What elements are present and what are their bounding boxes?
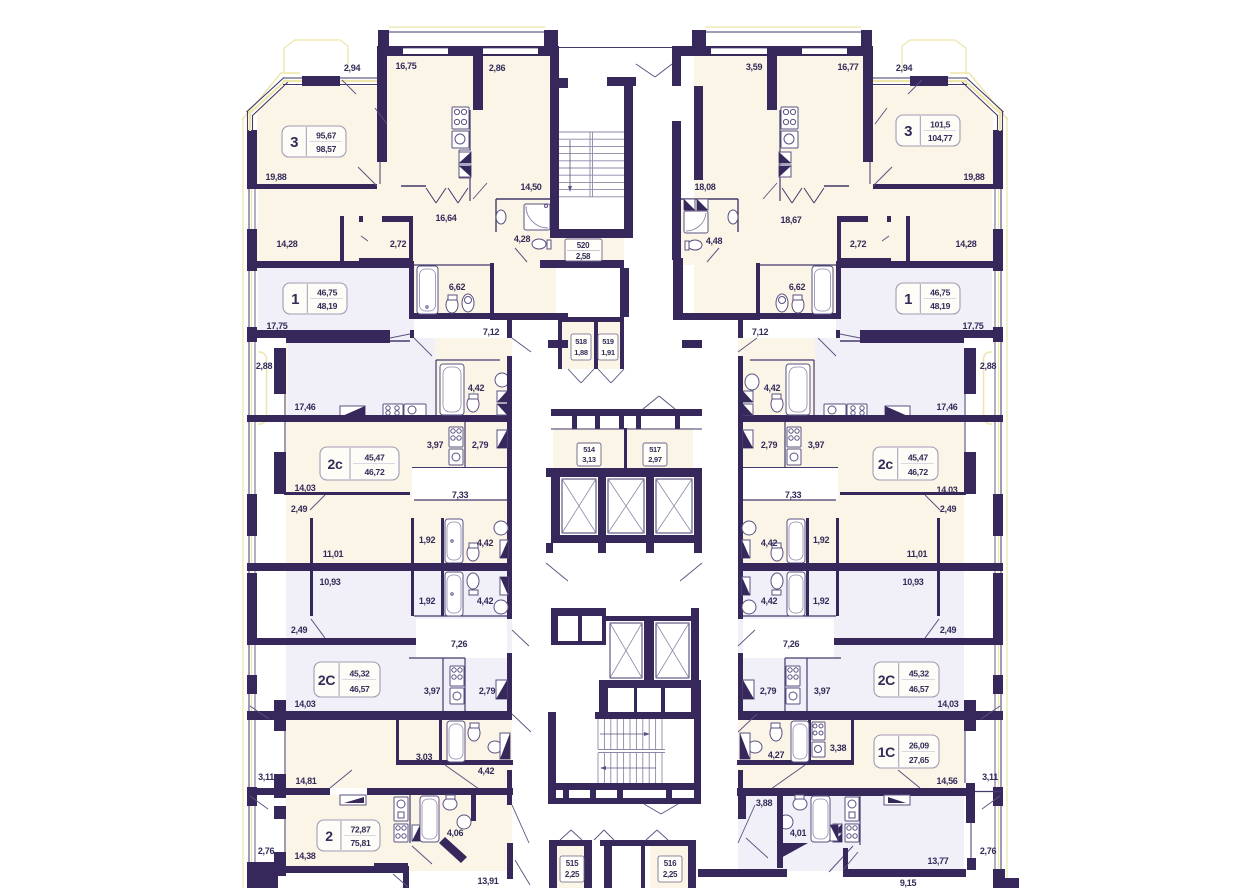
- svg-text:72,87: 72,87: [350, 825, 371, 835]
- svg-text:95,67: 95,67: [316, 131, 337, 141]
- svg-text:1C: 1C: [878, 744, 895, 760]
- svg-text:7,26: 7,26: [451, 639, 468, 649]
- svg-text:2,79: 2,79: [472, 440, 489, 450]
- svg-text:2,86: 2,86: [489, 63, 506, 73]
- svg-text:7,33: 7,33: [452, 490, 469, 500]
- svg-text:14,03: 14,03: [937, 699, 958, 709]
- svg-text:4,48: 4,48: [706, 236, 723, 246]
- svg-text:14,03: 14,03: [936, 485, 957, 495]
- svg-text:48,19: 48,19: [317, 301, 338, 311]
- svg-text:16,64: 16,64: [435, 213, 456, 223]
- svg-text:3,97: 3,97: [424, 686, 441, 696]
- svg-text:46,57: 46,57: [350, 684, 371, 694]
- svg-text:6,62: 6,62: [449, 282, 466, 292]
- svg-text:2,97: 2,97: [648, 455, 662, 464]
- svg-text:16,77: 16,77: [837, 62, 858, 72]
- svg-text:46,72: 46,72: [365, 467, 386, 477]
- svg-text:6,62: 6,62: [789, 282, 806, 292]
- svg-text:514: 514: [583, 445, 596, 454]
- svg-text:26,09: 26,09: [909, 741, 930, 751]
- svg-text:45,47: 45,47: [908, 453, 929, 463]
- svg-text:2,79: 2,79: [479, 686, 496, 696]
- svg-text:18,08: 18,08: [694, 182, 715, 192]
- svg-text:1,92: 1,92: [419, 535, 436, 545]
- svg-text:7,26: 7,26: [783, 639, 800, 649]
- svg-text:3,38: 3,38: [830, 743, 847, 753]
- svg-text:1,92: 1,92: [813, 596, 830, 606]
- svg-text:1: 1: [904, 291, 912, 308]
- svg-text:48,19: 48,19: [930, 301, 951, 311]
- svg-text:2c: 2c: [328, 456, 343, 472]
- svg-text:3,11: 3,11: [258, 772, 274, 782]
- svg-text:4,42: 4,42: [764, 383, 781, 393]
- svg-text:98,57: 98,57: [316, 144, 337, 154]
- svg-text:1,92: 1,92: [419, 596, 436, 606]
- svg-text:7,33: 7,33: [785, 490, 802, 500]
- svg-text:17,46: 17,46: [936, 402, 957, 412]
- svg-text:3,97: 3,97: [814, 686, 831, 696]
- svg-text:2,25: 2,25: [663, 870, 678, 879]
- svg-text:4,42: 4,42: [761, 538, 778, 548]
- svg-text:1,92: 1,92: [813, 535, 830, 545]
- svg-text:2: 2: [325, 828, 333, 844]
- svg-text:2,76: 2,76: [980, 846, 997, 856]
- svg-text:2,79: 2,79: [761, 440, 778, 450]
- svg-text:11,01: 11,01: [323, 549, 344, 559]
- svg-text:2,88: 2,88: [980, 361, 997, 371]
- svg-text:2,25: 2,25: [565, 870, 580, 879]
- svg-text:14,28: 14,28: [276, 239, 297, 249]
- svg-text:2,72: 2,72: [390, 239, 407, 249]
- svg-text:104,77: 104,77: [928, 133, 953, 143]
- svg-text:4,42: 4,42: [468, 383, 485, 393]
- svg-text:13,77: 13,77: [927, 856, 948, 866]
- svg-text:3,13: 3,13: [582, 455, 596, 464]
- svg-text:45,32: 45,32: [350, 669, 371, 679]
- svg-text:46,75: 46,75: [930, 288, 951, 298]
- svg-text:16,75: 16,75: [395, 61, 416, 71]
- svg-text:46,75: 46,75: [317, 288, 338, 298]
- svg-text:17,46: 17,46: [294, 402, 315, 412]
- svg-text:14,03: 14,03: [294, 699, 315, 709]
- svg-text:2c: 2c: [878, 456, 893, 472]
- svg-text:1,88: 1,88: [574, 348, 588, 357]
- svg-text:2C: 2C: [318, 672, 335, 688]
- svg-text:75,81: 75,81: [350, 838, 371, 848]
- svg-text:7,12: 7,12: [752, 327, 769, 337]
- svg-text:2,49: 2,49: [291, 625, 308, 635]
- svg-text:46,57: 46,57: [909, 684, 930, 694]
- svg-text:519: 519: [602, 337, 614, 346]
- svg-text:2,88: 2,88: [256, 361, 273, 371]
- svg-text:9,15: 9,15: [900, 878, 917, 888]
- svg-text:2C: 2C: [878, 672, 895, 688]
- svg-text:515: 515: [566, 859, 579, 868]
- svg-text:7,12: 7,12: [483, 327, 500, 337]
- svg-text:14,28: 14,28: [955, 239, 976, 249]
- svg-text:4,06: 4,06: [447, 828, 464, 838]
- svg-text:4,42: 4,42: [477, 538, 494, 548]
- svg-text:10,93: 10,93: [319, 577, 340, 587]
- svg-text:18,67: 18,67: [780, 215, 801, 225]
- svg-text:4,42: 4,42: [761, 596, 778, 606]
- svg-text:19,88: 19,88: [265, 172, 286, 182]
- svg-text:13,91: 13,91: [477, 876, 498, 886]
- svg-text:516: 516: [664, 859, 677, 868]
- svg-text:14,81: 14,81: [295, 776, 316, 786]
- svg-text:17,75: 17,75: [962, 321, 983, 331]
- svg-text:10,93: 10,93: [902, 577, 923, 587]
- svg-text:1,91: 1,91: [601, 348, 615, 357]
- svg-text:1: 1: [291, 291, 299, 308]
- svg-text:4,42: 4,42: [478, 766, 495, 776]
- svg-text:2,94: 2,94: [344, 63, 361, 73]
- svg-text:518: 518: [575, 337, 587, 346]
- svg-text:101,5: 101,5: [930, 120, 951, 130]
- svg-text:45,47: 45,47: [365, 453, 386, 463]
- svg-text:14,50: 14,50: [520, 182, 541, 192]
- svg-text:2,49: 2,49: [940, 625, 957, 635]
- svg-text:27,65: 27,65: [909, 755, 930, 765]
- svg-text:11,01: 11,01: [907, 549, 928, 559]
- svg-text:45,32: 45,32: [909, 669, 930, 679]
- svg-text:4,01: 4,01: [790, 828, 807, 838]
- svg-text:46,72: 46,72: [908, 467, 929, 477]
- svg-text:2,49: 2,49: [291, 504, 308, 514]
- svg-text:517: 517: [649, 445, 661, 454]
- svg-text:2,49: 2,49: [940, 504, 957, 514]
- svg-text:520: 520: [577, 241, 590, 250]
- svg-text:2,58: 2,58: [576, 252, 591, 261]
- svg-text:4,28: 4,28: [514, 234, 531, 244]
- svg-text:2,79: 2,79: [760, 686, 777, 696]
- svg-text:3,03: 3,03: [416, 752, 433, 762]
- svg-text:3: 3: [904, 123, 912, 140]
- svg-text:3,97: 3,97: [427, 440, 444, 450]
- svg-text:3,59: 3,59: [746, 62, 763, 72]
- svg-text:3,97: 3,97: [808, 440, 825, 450]
- svg-text:4,42: 4,42: [477, 596, 494, 606]
- svg-text:3: 3: [290, 134, 298, 151]
- svg-text:14,38: 14,38: [294, 851, 315, 861]
- svg-text:3,88: 3,88: [756, 798, 773, 808]
- svg-text:2,94: 2,94: [896, 63, 913, 73]
- svg-text:2,76: 2,76: [258, 846, 275, 856]
- svg-text:2,72: 2,72: [850, 239, 867, 249]
- svg-text:14,03: 14,03: [294, 483, 315, 493]
- svg-text:4,27: 4,27: [768, 750, 785, 760]
- svg-text:19,88: 19,88: [963, 172, 984, 182]
- svg-text:14,56: 14,56: [936, 776, 957, 786]
- svg-text:17,75: 17,75: [266, 321, 287, 331]
- svg-text:3,11: 3,11: [982, 772, 998, 782]
